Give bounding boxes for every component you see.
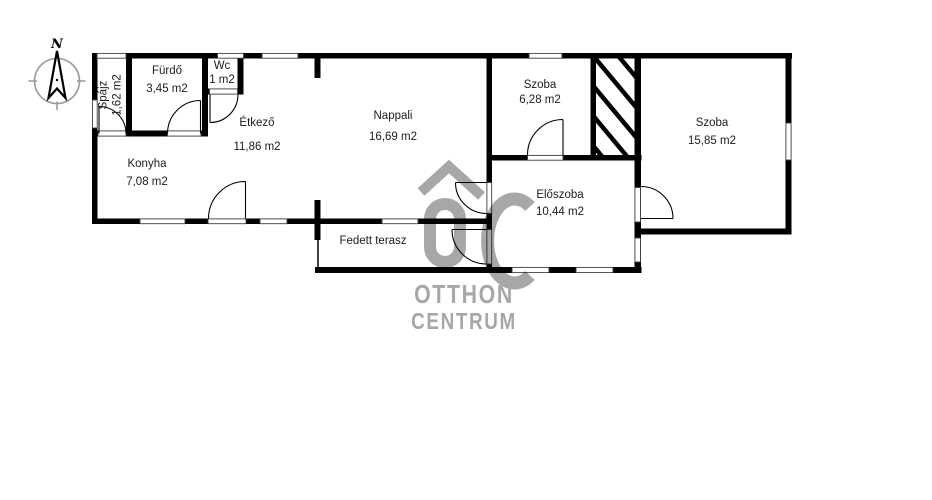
door-swing — [528, 120, 564, 156]
door-opening — [528, 155, 564, 160]
door-opening — [210, 89, 238, 94]
hatch-area — [590, 22, 640, 202]
room-label-szoba-1: Szoba 6,28 m2 — [519, 78, 561, 108]
room-area: 16,69 m2 — [369, 127, 417, 148]
room-area: 10,44 m2 — [536, 204, 584, 221]
door-opening — [98, 131, 126, 136]
room-name: Szoba — [688, 114, 736, 132]
door-opening — [208, 219, 246, 224]
window-opening — [382, 219, 418, 224]
window-opening — [512, 267, 549, 272]
window-opening — [218, 53, 244, 58]
north-arrow-icon — [49, 51, 66, 98]
room-name: Fedett terasz — [339, 234, 406, 248]
room-label-wc: Wc 1 m2 — [209, 59, 235, 87]
room-name: Fürdő — [146, 62, 188, 80]
window-opening — [529, 53, 562, 58]
room-label-eloszoba: Előszoba 10,44 m2 — [536, 187, 584, 221]
room-label-furdo: Fürdő 3,45 m2 — [146, 62, 188, 98]
floorplan-drawing: N — [0, 0, 932, 500]
room-name: Szoba — [519, 78, 561, 93]
door-swing — [168, 101, 201, 134]
room-label-fedett-terasz: Fedett terasz — [339, 234, 406, 248]
door-opening — [487, 183, 492, 214]
room-area: 7,08 m2 — [126, 173, 168, 191]
window-opening — [92, 100, 97, 128]
window-opening — [260, 219, 287, 224]
room-name: Étkező — [233, 111, 280, 135]
room-name: Wc — [209, 59, 235, 73]
room-label-konyha: Konyha 7,08 m2 — [126, 155, 168, 191]
door-swing — [456, 183, 487, 214]
door-opening — [487, 230, 492, 265]
room-label-nappali: Nappali 16,69 m2 — [369, 106, 417, 148]
room-area: 6,28 m2 — [519, 93, 561, 108]
window-opening — [140, 219, 185, 224]
room-area: 1 m2 — [209, 73, 235, 87]
window-opening — [97, 53, 126, 58]
door-swing — [209, 182, 246, 219]
room-area: 11,86 m2 — [233, 135, 280, 159]
window-opening — [576, 267, 613, 272]
compass-rose: N — [29, 37, 86, 110]
walls — [92, 53, 792, 273]
room-name: Előszoba — [536, 187, 584, 204]
floorplan-canvas: N Spájz 1,62 m2 Fürdő 3,45 m2 Wc 1 m2 Ét… — [0, 0, 932, 500]
room-name: Spájz — [98, 74, 112, 116]
compass-north-label: N — [50, 37, 64, 52]
window-opening — [635, 238, 641, 262]
room-name: Nappali — [369, 106, 417, 127]
door-swing — [452, 230, 487, 265]
room-area: 15,85 m2 — [688, 132, 736, 150]
room-label-etkezo: Étkező 11,86 m2 — [233, 111, 280, 159]
window-opening — [786, 123, 791, 160]
door-opening — [635, 188, 641, 223]
room-area: 3,45 m2 — [146, 80, 188, 98]
window-opening — [262, 53, 298, 58]
window-openings — [92, 53, 791, 272]
room-area: 1,62 m2 — [111, 74, 125, 116]
room-label-spajz: Spájz 1,62 m2 — [98, 74, 125, 116]
door-swing — [641, 187, 673, 219]
room-name: Konyha — [126, 155, 168, 173]
door-opening — [168, 131, 202, 136]
room-label-szoba-2: Szoba 15,85 m2 — [688, 114, 736, 150]
